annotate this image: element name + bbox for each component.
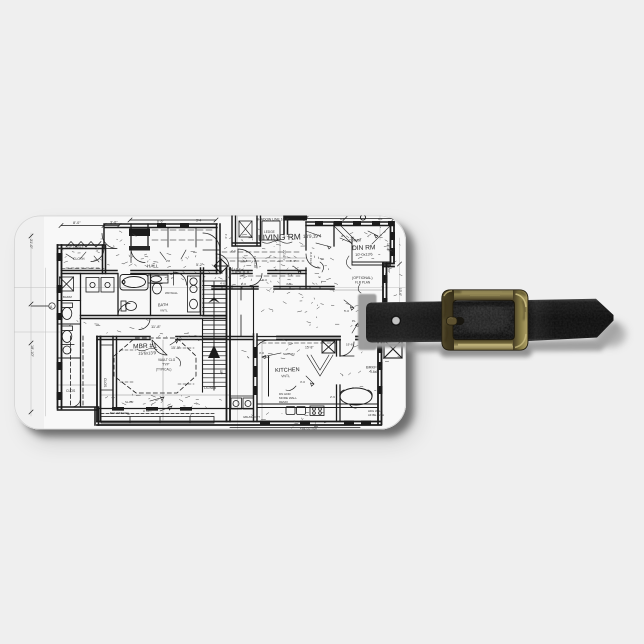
svg-text:2'-0: 2'-0: [231, 249, 236, 253]
svg-text:6'-0: 6'-0: [262, 278, 267, 282]
svg-text:2'-1: 2'-1: [198, 338, 203, 342]
svg-text:19'-8: 19'-8: [346, 343, 353, 347]
svg-text:6-0: 6-0: [378, 217, 383, 221]
svg-text:12'-0 HD: 12'-0 HD: [253, 256, 257, 269]
svg-text:8'-6": 8'-6": [157, 220, 165, 224]
svg-text:4'-6: 4'-6: [220, 282, 225, 286]
svg-text:5'-2": 5'-2": [196, 263, 204, 267]
svg-text:BRKFST: BRKFST: [366, 365, 382, 370]
svg-text:BA/RM: BA/RM: [63, 295, 73, 299]
svg-text:DIN RM: DIN RM: [352, 244, 376, 252]
svg-text:BAY WINDOW: BAY WINDOW: [110, 411, 129, 415]
svg-text:PL: PL: [352, 319, 356, 323]
svg-text:BATH: BATH: [158, 302, 169, 308]
svg-text:3'-0: 3'-0: [259, 351, 264, 355]
svg-text:2'8: 2'8: [166, 259, 170, 263]
svg-text:(TYPICAL): (TYPICAL): [156, 368, 171, 372]
svg-text:1'-0: 1'-0: [224, 234, 228, 239]
svg-text:9-6x8: 9-6x8: [370, 370, 378, 374]
svg-text:FLR PLAN: FLR PLAN: [355, 281, 371, 285]
svg-text:13'-6": 13'-6": [398, 288, 402, 296]
svg-text:WR WALL: WR WALL: [165, 291, 178, 295]
svg-text:3'-0: 3'-0: [300, 380, 305, 384]
svg-text:HALL: HALL: [147, 264, 159, 269]
svg-text:REMO: REMO: [279, 400, 289, 404]
svg-text:9-6: 9-6: [340, 217, 345, 221]
svg-text:9'-0 CLG: 9'-0 CLG: [309, 252, 313, 265]
svg-text:22'-6": 22'-6": [282, 250, 286, 259]
svg-text:LI OPT: LI OPT: [143, 409, 152, 413]
svg-text:(OPTIONAL): (OPTIONAL): [352, 276, 373, 280]
svg-text:13'9,19'4: 13'9,19'4: [303, 233, 322, 238]
svg-text:'TYP': 'TYP': [162, 363, 170, 367]
svg-text:OPTION: OPTION: [384, 273, 388, 285]
svg-text:11'-8": 11'-8": [151, 324, 161, 329]
svg-text:CLOTH: CLOTH: [73, 257, 85, 261]
svg-text:SHADOW LINE 16'-0": SHADOW LINE 16'-0": [256, 218, 290, 222]
svg-text:CLOS: CLOS: [66, 389, 76, 393]
svg-text:VNTL: VNTL: [281, 374, 290, 378]
svg-text:LAUNDR: LAUNDR: [204, 386, 217, 390]
svg-text:15'-8": 15'-8": [305, 346, 314, 350]
svg-text:3'-4: 3'-4: [196, 219, 201, 223]
svg-text:8'-0": 8'-0": [73, 221, 81, 225]
svg-text:10'-0x13'6: 10'-0x13'6: [355, 252, 372, 257]
svg-text:21'-0": 21'-0": [29, 239, 33, 249]
svg-text:GP CABLE: GP CABLE: [67, 245, 85, 249]
svg-text:3'-6": 3'-6": [110, 221, 118, 225]
svg-text:SL-DR: SL-DR: [125, 400, 133, 404]
svg-text:SHOWN: SHOWN: [283, 352, 295, 356]
svg-text:VNTL: VNTL: [160, 309, 168, 313]
svg-text:10'-8": 10'-8": [386, 243, 390, 252]
svg-text:CLOS: CLOS: [103, 378, 107, 388]
svg-text:KITCHEN: KITCHEN: [275, 367, 300, 374]
svg-text:2'-6: 2'-6: [330, 395, 335, 399]
svg-text:VAULT CLG: VAULT CLG: [158, 358, 176, 362]
svg-text:GBL/DH OPT: GBL/DH OPT: [243, 415, 260, 419]
svg-text:18'-10": 18'-10": [30, 345, 34, 357]
svg-text:UP: UP: [219, 370, 223, 374]
svg-text:15'6x13'9: 15'6x13'9: [138, 350, 157, 356]
svg-text:AF BE AVBH: AF BE AVBH: [368, 413, 384, 417]
svg-text:5'-0: 5'-0: [344, 309, 349, 313]
